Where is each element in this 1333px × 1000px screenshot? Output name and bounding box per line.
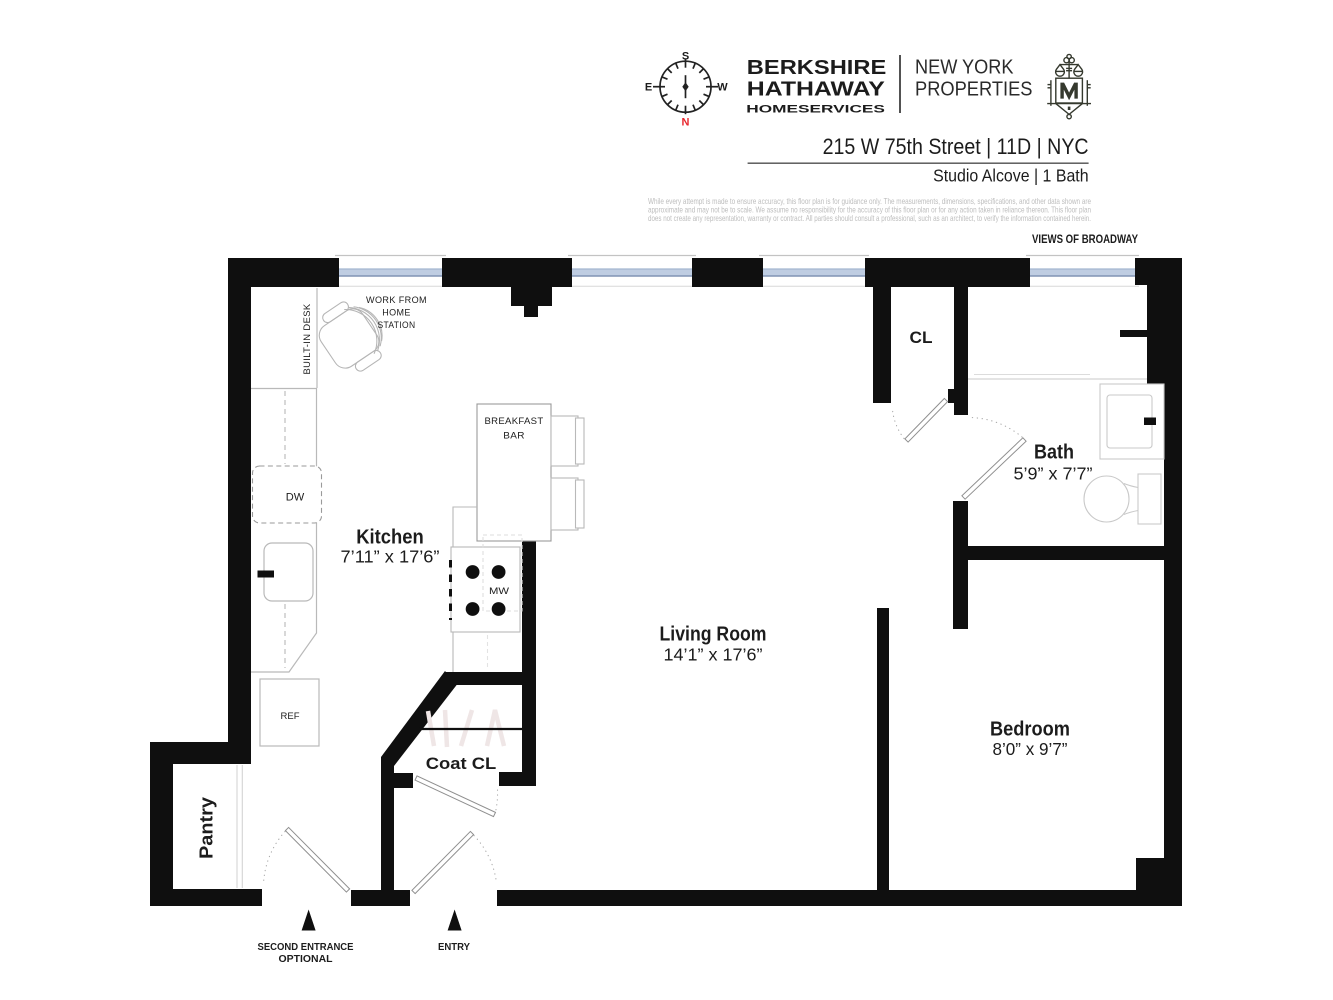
svg-text:5’9” x 7’7”: 5’9” x 7’7” xyxy=(1014,464,1093,484)
svg-text:STATION: STATION xyxy=(378,320,416,331)
svg-text:N: N xyxy=(682,117,690,129)
svg-text:Studio Alcove | 1 Bath: Studio Alcove | 1 Bath xyxy=(933,166,1089,186)
svg-text:14’1” x 17’6”: 14’1” x 17’6” xyxy=(664,645,763,665)
svg-text:Living Room: Living Room xyxy=(660,623,767,646)
svg-text:VIEWS OF BROADWAY: VIEWS OF BROADWAY xyxy=(1032,234,1138,246)
svg-text:Pantry: Pantry xyxy=(197,797,217,859)
svg-text:BREAKFAST: BREAKFAST xyxy=(485,416,544,427)
svg-text:W: W xyxy=(717,82,728,94)
svg-text:Coat CL: Coat CL xyxy=(426,754,497,773)
svg-text:SECOND ENTRANCE: SECOND ENTRANCE xyxy=(258,942,354,953)
svg-text:WORK FROM: WORK FROM xyxy=(366,295,427,306)
svg-text:REF: REF xyxy=(281,711,300,722)
svg-text:CL: CL xyxy=(910,328,933,347)
svg-text:PROPERTIES: PROPERTIES xyxy=(915,78,1033,101)
svg-text:E: E xyxy=(645,82,652,94)
svg-text:NEW YORK: NEW YORK xyxy=(915,56,1014,79)
svg-text:Kitchen: Kitchen xyxy=(356,526,424,549)
svg-text:BAR: BAR xyxy=(503,431,525,442)
svg-text:Bedroom: Bedroom xyxy=(990,718,1070,741)
svg-text:HATHAWAY: HATHAWAY xyxy=(747,78,885,101)
svg-text:MW: MW xyxy=(489,586,510,597)
svg-text:215 W 75th Street | 11D | NYC: 215 W 75th Street | 11D | NYC xyxy=(823,134,1089,159)
svg-text:DW: DW xyxy=(286,492,305,504)
svg-text:8’0” x 9’7”: 8’0” x 9’7” xyxy=(993,739,1068,759)
svg-text:HOME: HOME xyxy=(382,307,411,318)
svg-text:OPTIONAL: OPTIONAL xyxy=(279,954,333,965)
svg-text:ENTRY: ENTRY xyxy=(438,942,470,953)
svg-text:S: S xyxy=(682,51,689,63)
svg-text:BERKSHIRE: BERKSHIRE xyxy=(747,56,887,79)
svg-text:7’11” x 17’6”: 7’11” x 17’6” xyxy=(341,547,440,567)
svg-text:HOMESERVICES: HOMESERVICES xyxy=(746,104,885,116)
svg-text:BUILT-IN DESK: BUILT-IN DESK xyxy=(302,303,313,374)
svg-text:does not create any representa: does not create any representation, warr… xyxy=(648,214,1091,223)
svg-text:Bath: Bath xyxy=(1034,442,1074,464)
